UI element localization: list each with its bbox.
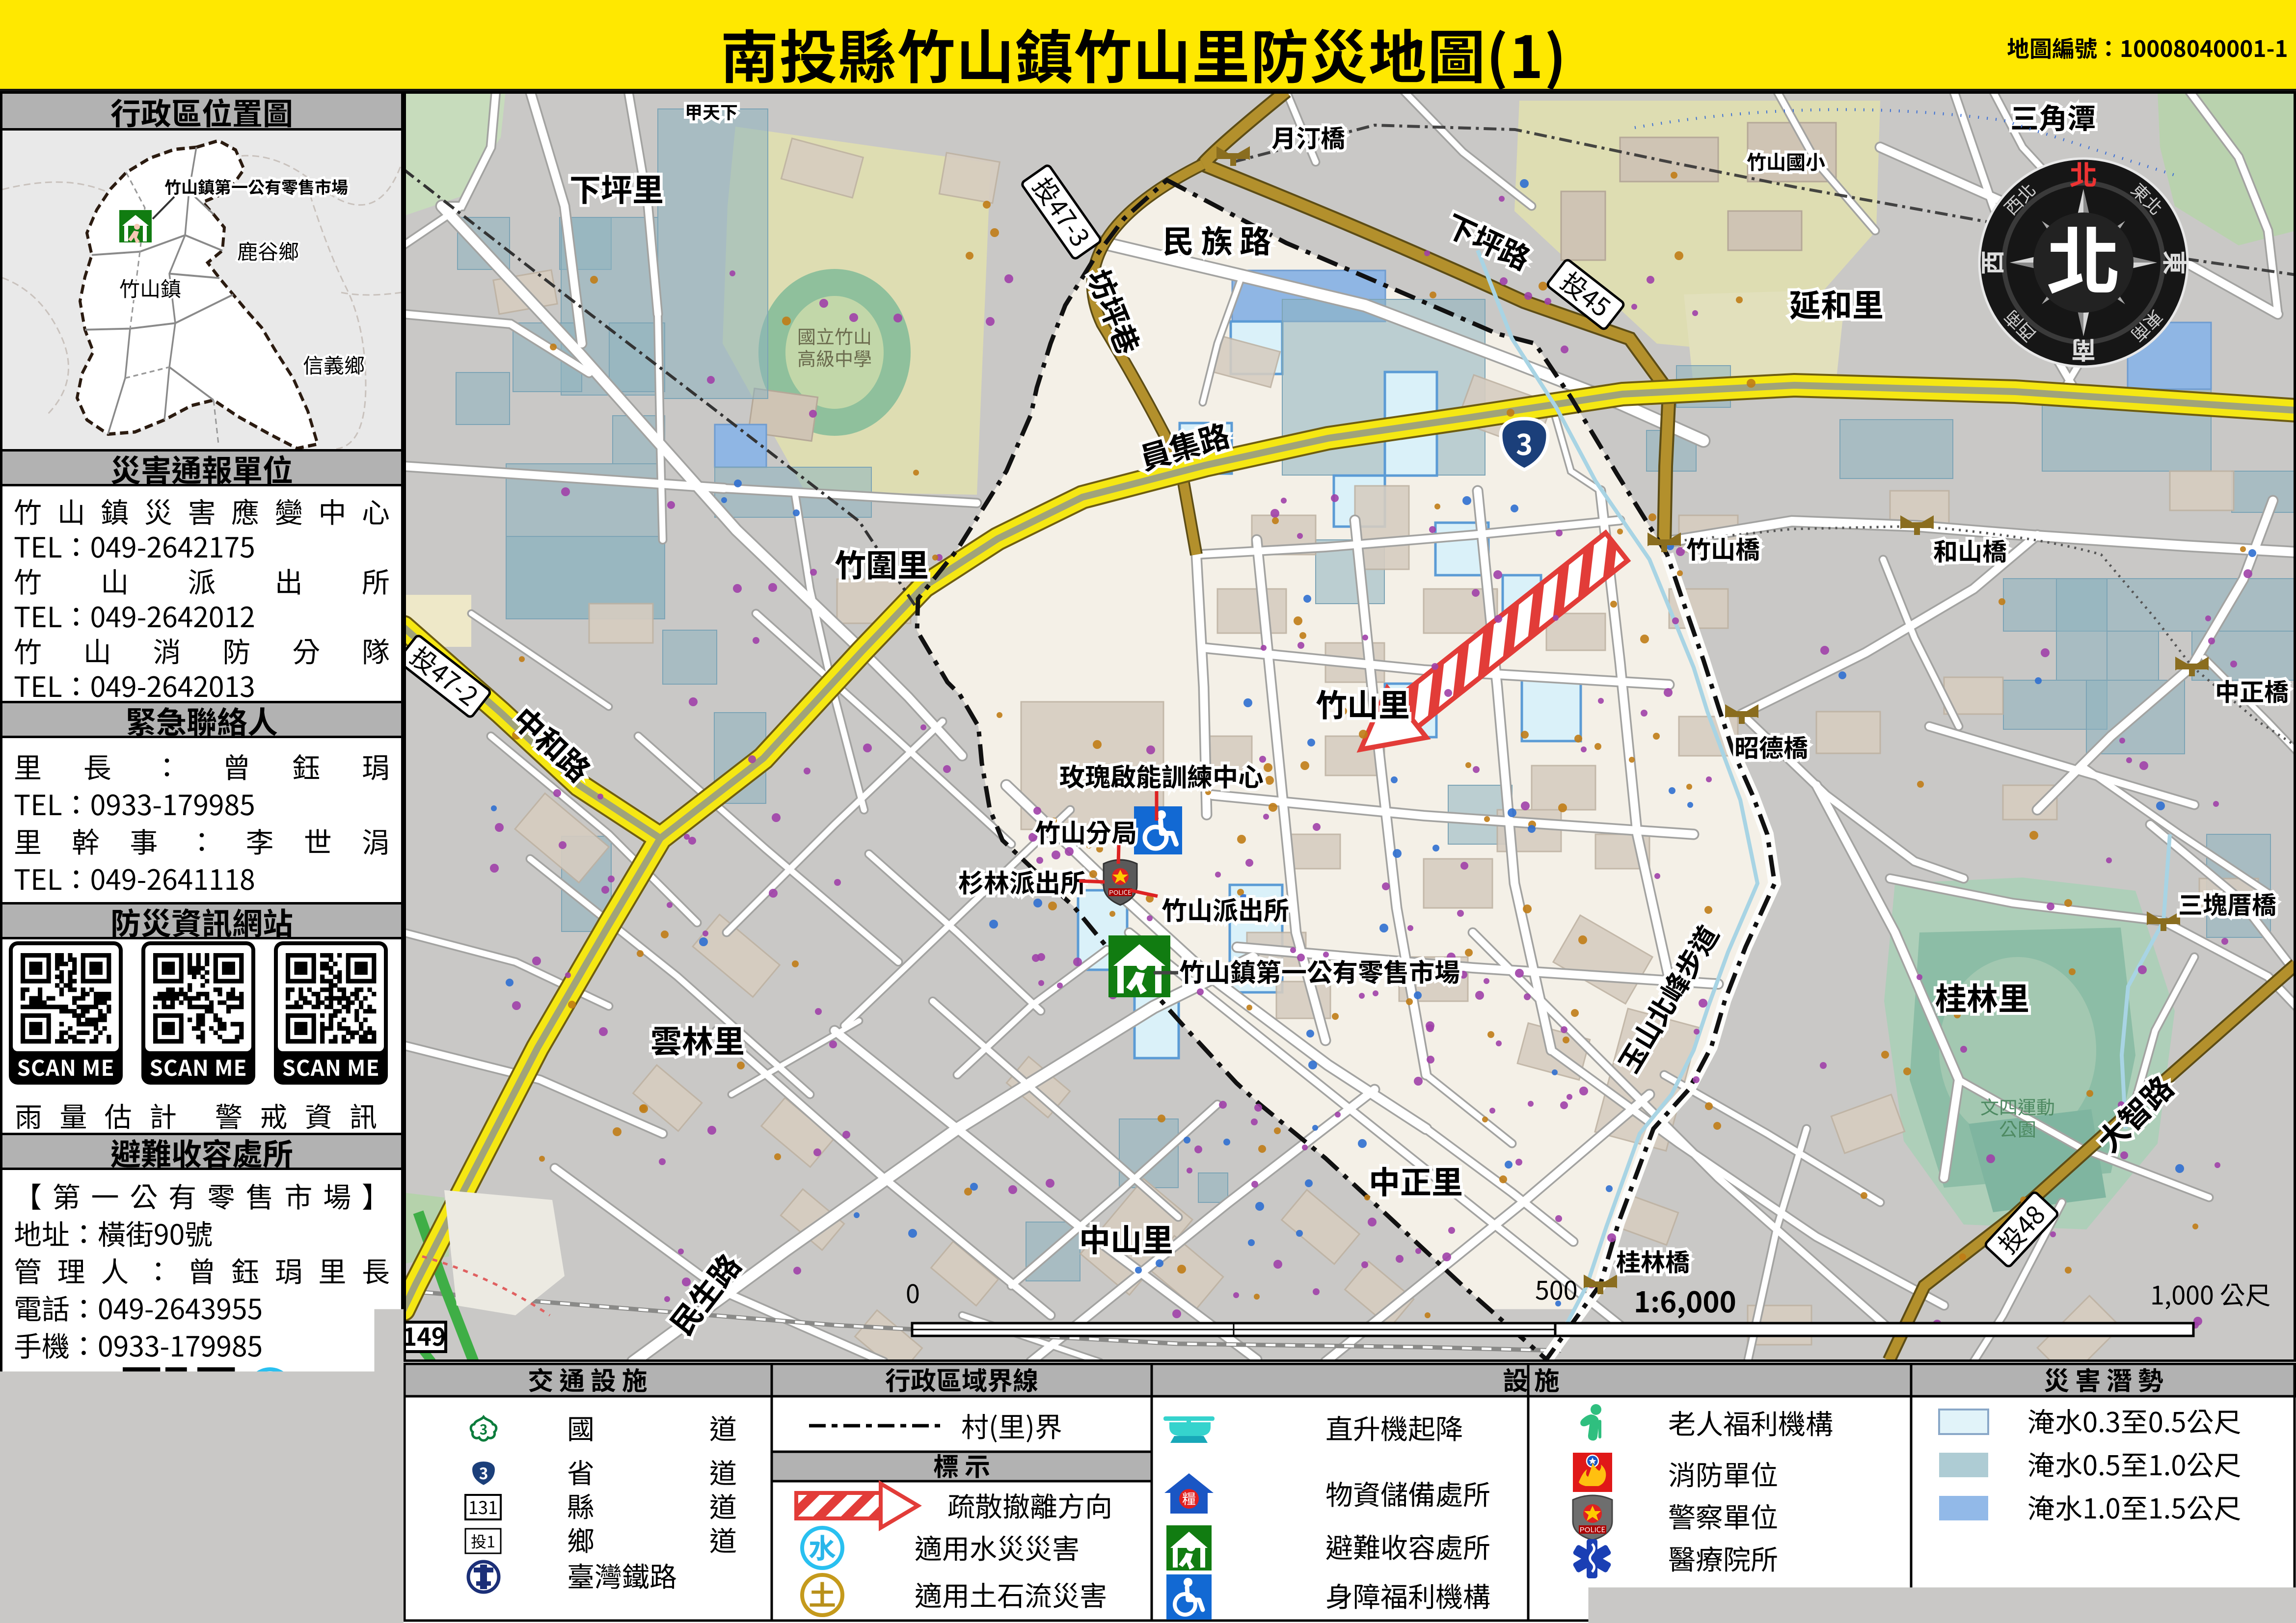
svg-text:標 示: 標 示 <box>933 1446 990 1483</box>
svg-text:南: 南 <box>2071 334 2096 369</box>
svg-text:1,000 公尺: 1,000 公尺 <box>2150 1275 2271 1312</box>
svg-text:SCAN ME: SCAN ME <box>149 1051 247 1082</box>
svg-text:疏散撤離方向: 疏散撤離方向 <box>947 1485 1112 1525</box>
svg-text:北: 北 <box>2047 203 2120 310</box>
svg-text:雲林里: 雲林里 <box>650 1017 745 1062</box>
svg-text:適用水災災害: 適用水災災害 <box>915 1527 1080 1567</box>
svg-text:老人福利機構: 老人福利機構 <box>1668 1403 1833 1442</box>
svg-text:身障福利機構: 身障福利機構 <box>1325 1575 1490 1615</box>
svg-text:POLICE: POLICE <box>1580 1524 1605 1535</box>
svg-text:物資儲備處所: 物資儲備處所 <box>1325 1473 1490 1513</box>
svg-text:交 通 設 施: 交 通 設 施 <box>528 1362 647 1397</box>
svg-text:淹水0.3至0.5公尺: 淹水0.3至0.5公尺 <box>2027 1401 2241 1440</box>
svg-text:中正橋: 中正橋 <box>2215 673 2289 708</box>
svg-text:鄉: 鄉 <box>567 1519 594 1559</box>
svg-text:延和里: 延和里 <box>1789 281 1884 326</box>
svg-text:鹿谷鄉: 鹿谷鄉 <box>237 236 299 266</box>
svg-text:民 族 路: 民 族 路 <box>1162 217 1271 262</box>
svg-text:桂林橋: 桂林橋 <box>1616 1243 1690 1278</box>
svg-text:玫瑰啟能訓練中心: 玫瑰啟能訓練中心 <box>1059 757 1264 794</box>
svg-text:竹山里: 竹山里 <box>1316 681 1410 726</box>
svg-text:竹山分局: 竹山分局 <box>1035 813 1137 850</box>
svg-text:淹水0.5至1.0公尺: 淹水0.5至1.0公尺 <box>2027 1444 2241 1484</box>
svg-text:三角潭: 三角潭 <box>2010 96 2096 137</box>
svg-text:三塊厝橋: 三塊厝橋 <box>2178 886 2276 921</box>
svg-text:投1: 投1 <box>471 1530 495 1552</box>
svg-text:適用土石流災害: 適用土石流災害 <box>915 1574 1107 1614</box>
svg-text:0: 0 <box>906 1274 920 1310</box>
svg-text:避難收容處所: 避難收容處所 <box>1325 1526 1490 1566</box>
svg-text:3: 3 <box>479 1462 488 1484</box>
svg-text:3: 3 <box>480 1419 488 1439</box>
svg-text:甲天下: 甲天下 <box>685 99 738 124</box>
svg-text:水: 水 <box>809 1527 836 1567</box>
svg-text:SCAN ME: SCAN ME <box>282 1051 379 1082</box>
svg-text:SCAN ME: SCAN ME <box>17 1051 114 1082</box>
svg-text:POLICE: POLICE <box>1109 887 1131 897</box>
svg-text:淹水1.0至1.5公尺: 淹水1.0至1.5公尺 <box>2027 1487 2241 1527</box>
svg-text:災 害 潛 勢: 災 害 潛 勢 <box>2044 1362 2163 1397</box>
svg-text:149: 149 <box>404 1318 446 1353</box>
svg-text:竹山國小: 竹山國小 <box>1747 147 1825 175</box>
svg-text:和山橋: 和山橋 <box>1933 532 2007 568</box>
svg-text:131: 131 <box>468 1494 498 1519</box>
svg-text:西: 西 <box>1973 250 2009 275</box>
svg-text:公園: 公園 <box>1999 1115 2036 1142</box>
svg-text:信義鄉: 信義鄉 <box>303 349 365 379</box>
svg-text:村(里)界: 村(里)界 <box>961 1406 1062 1445</box>
svg-text:道: 道 <box>709 1408 737 1447</box>
svg-text:土: 土 <box>255 1414 285 1459</box>
svg-text:東: 東 <box>2158 250 2193 275</box>
svg-text:3: 3 <box>1516 422 1533 463</box>
svg-text:土: 土 <box>809 1574 836 1614</box>
svg-text:臺灣鐵路: 臺灣鐵路 <box>567 1555 677 1595</box>
svg-text:國: 國 <box>567 1408 594 1447</box>
svg-text:月汀橋: 月汀橋 <box>1271 119 1345 155</box>
svg-text:警察單位: 警察單位 <box>1668 1496 1778 1536</box>
svg-text:竹山橋: 竹山橋 <box>1686 531 1760 566</box>
svg-text:醫療院所: 醫療院所 <box>1668 1538 1778 1578</box>
svg-text:竹圍里: 竹圍里 <box>835 541 929 586</box>
svg-text:水: 水 <box>255 1366 285 1410</box>
svg-text:直升機起降: 直升機起降 <box>1325 1408 1463 1447</box>
svg-text:竹山鎮第一公有零售市場: 竹山鎮第一公有零售市場 <box>164 174 348 198</box>
svg-text:中山里: 中山里 <box>1079 1216 1173 1261</box>
svg-text:糧: 糧 <box>1182 1489 1196 1508</box>
svg-text:昭德橋: 昭德橋 <box>1734 729 1808 764</box>
svg-text:北: 北 <box>2070 154 2097 193</box>
svg-text:行政區域界線: 行政區域界線 <box>885 1362 1038 1397</box>
svg-text:桂林里: 桂林里 <box>1935 974 2029 1019</box>
svg-text:竹山鎮第一公有零售市場: 竹山鎮第一公有零售市場 <box>1179 952 1460 989</box>
svg-text:高級中學: 高級中學 <box>797 344 872 371</box>
svg-text:中正里: 中正里 <box>1369 1158 1463 1203</box>
svg-text:500: 500 <box>1535 1270 1578 1307</box>
svg-text:下坪里: 下坪里 <box>569 165 664 211</box>
svg-text:杉林派出所: 杉林派出所 <box>958 863 1086 900</box>
svg-text:消防單位: 消防單位 <box>1668 1454 1778 1493</box>
svg-text:竹山派出所: 竹山派出所 <box>1162 890 1289 927</box>
svg-text:道: 道 <box>709 1519 737 1559</box>
svg-text:竹山鎮: 竹山鎮 <box>119 273 181 303</box>
svg-text:1:6,000: 1:6,000 <box>1634 1279 1736 1321</box>
svg-text:設 施: 設 施 <box>1503 1362 1560 1397</box>
